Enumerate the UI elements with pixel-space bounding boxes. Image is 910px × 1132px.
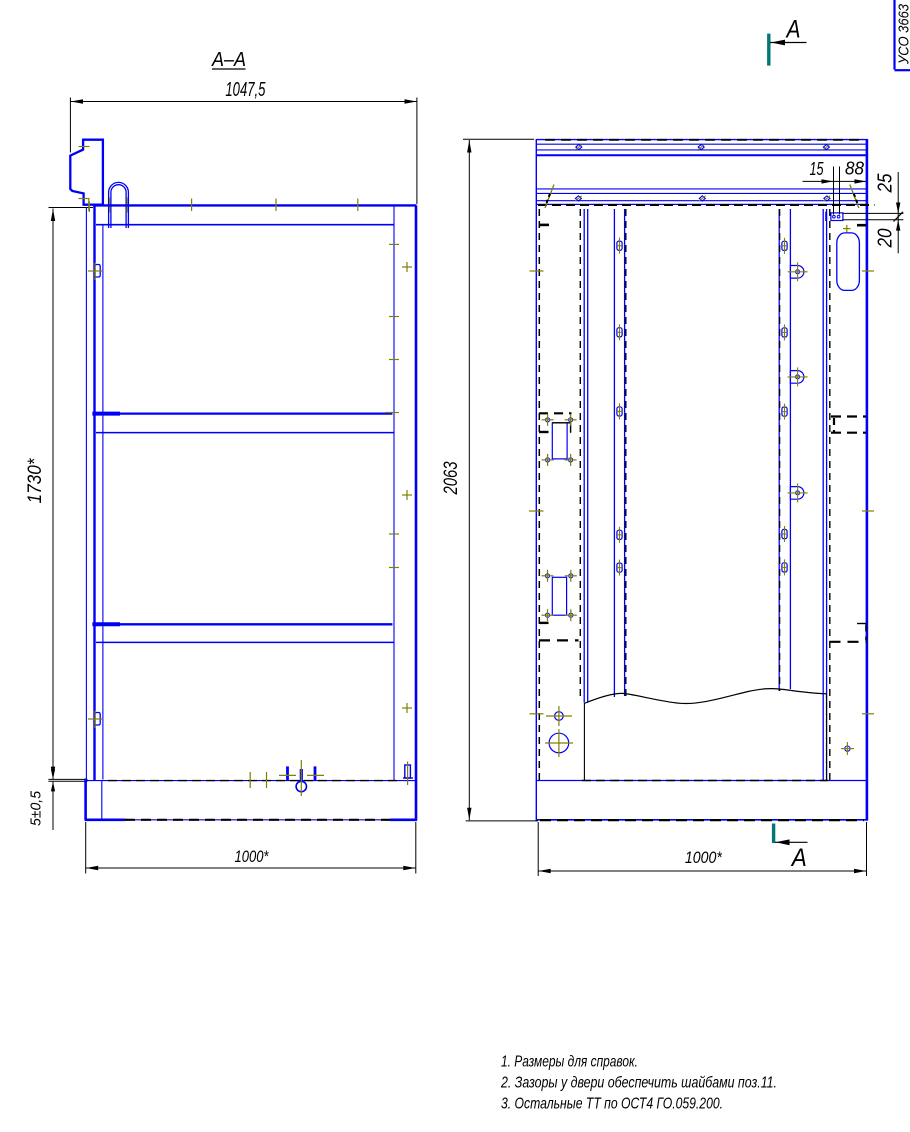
svg-text:2063: 2063 [441, 461, 462, 495]
svg-text:1730*: 1730* [25, 458, 46, 504]
svg-text:1047,5: 1047,5 [225, 79, 266, 101]
svg-text:1000*: 1000* [235, 847, 270, 866]
svg-text:1. Размеры для справок.: 1. Размеры для справок. [501, 1054, 638, 1071]
svg-text:1000*: 1000* [685, 848, 723, 867]
svg-text:3. Остальные ТТ по ОСТ4 ГО.059: 3. Остальные ТТ по ОСТ4 ГО.059.200. [501, 1096, 723, 1113]
svg-text:20: 20 [875, 229, 897, 249]
svg-text:УСО 3663: УСО 3663 [896, 3, 910, 64]
svg-text:А: А [790, 844, 807, 872]
svg-text:2. Зазоры у двери обеспечить ш: 2. Зазоры у двери обеспечить шайбами поз… [500, 1075, 777, 1092]
svg-text:5±0,5: 5±0,5 [28, 790, 45, 826]
svg-text:88: 88 [845, 159, 864, 179]
svg-text:15: 15 [810, 159, 825, 179]
svg-text:А–А: А–А [210, 48, 246, 71]
svg-text:А: А [785, 16, 801, 44]
svg-text:25: 25 [875, 173, 897, 194]
